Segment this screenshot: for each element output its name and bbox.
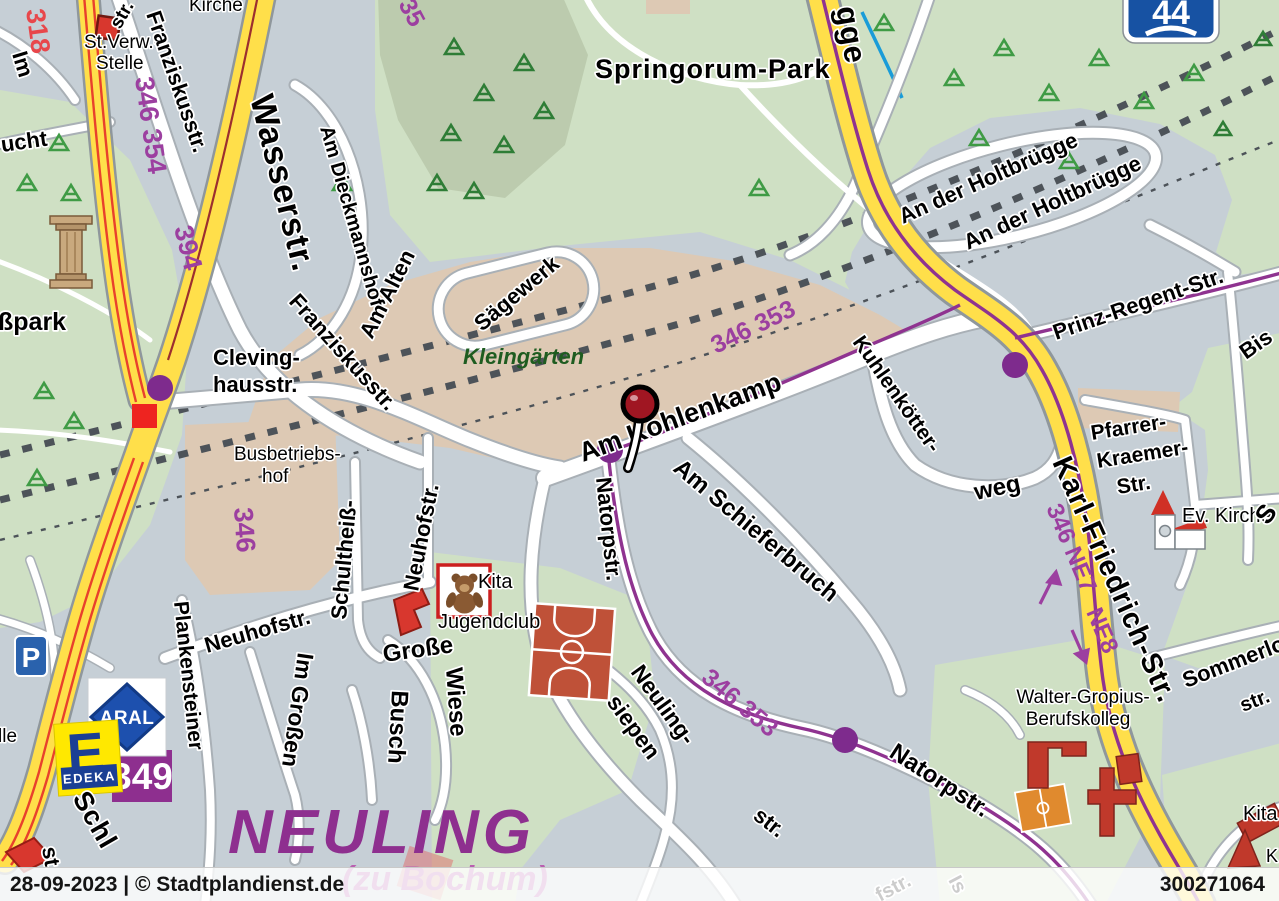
footer-map-id: 300271064 (1160, 873, 1279, 897)
a44-sign: 44 (1123, 0, 1219, 43)
map-canvas[interactable]: 44 P 349 ARAL E EDEKA NEULING (zu Bochum… (0, 0, 1279, 901)
footer-date-copyright: 28-09-2023 | © Stadtplandienst.de (0, 873, 344, 897)
svg-text:Jugendclub: Jugendclub (438, 611, 540, 633)
svg-text:K: K (1266, 846, 1278, 866)
svg-text:Walter-Gropius-: Walter-Gropius- (1016, 687, 1149, 708)
edeka-logo: E EDEKA (54, 719, 123, 796)
parking-icon: P (15, 636, 47, 676)
svg-text:Kirche: Kirche (189, 0, 243, 16)
svg-text:Kleingärten: Kleingärten (463, 344, 584, 369)
svg-text:Berufskolleg: Berufskolleg (1026, 709, 1131, 730)
svg-text:Springorum-Park: Springorum-Park (595, 54, 831, 84)
svg-text:ßpark: ßpark (0, 308, 66, 336)
footer-bar: 28-09-2023 | © Stadtplandienst.de 300271… (0, 867, 1279, 901)
route-346: 346 (228, 506, 261, 553)
svg-text:Wiese: Wiese (440, 667, 472, 738)
svg-text:hof: hof (262, 466, 289, 487)
svg-text:hausstr.: hausstr. (213, 372, 297, 397)
transit-stop[interactable] (832, 727, 858, 753)
svg-text:Stelle: Stelle (96, 53, 144, 74)
transit-stop[interactable] (147, 375, 173, 401)
district-name: NEULING (228, 798, 535, 867)
basketball-court-icon (529, 603, 615, 700)
svg-text:Busch: Busch (382, 690, 413, 765)
svg-text:Busbetriebs-: Busbetriebs- (234, 444, 341, 465)
route-318: 318 (20, 7, 56, 56)
level-crossing-icon (132, 404, 157, 428)
basketball-court-icon-small (1015, 784, 1071, 832)
svg-text:Cleving-: Cleving- (213, 345, 300, 370)
svg-text:Kita: Kita (478, 571, 513, 593)
transit-stop[interactable] (1002, 352, 1028, 378)
svg-text:P: P (22, 642, 41, 673)
svg-text:Kita: Kita (1243, 803, 1278, 825)
svg-text:lle: lle (0, 726, 17, 747)
